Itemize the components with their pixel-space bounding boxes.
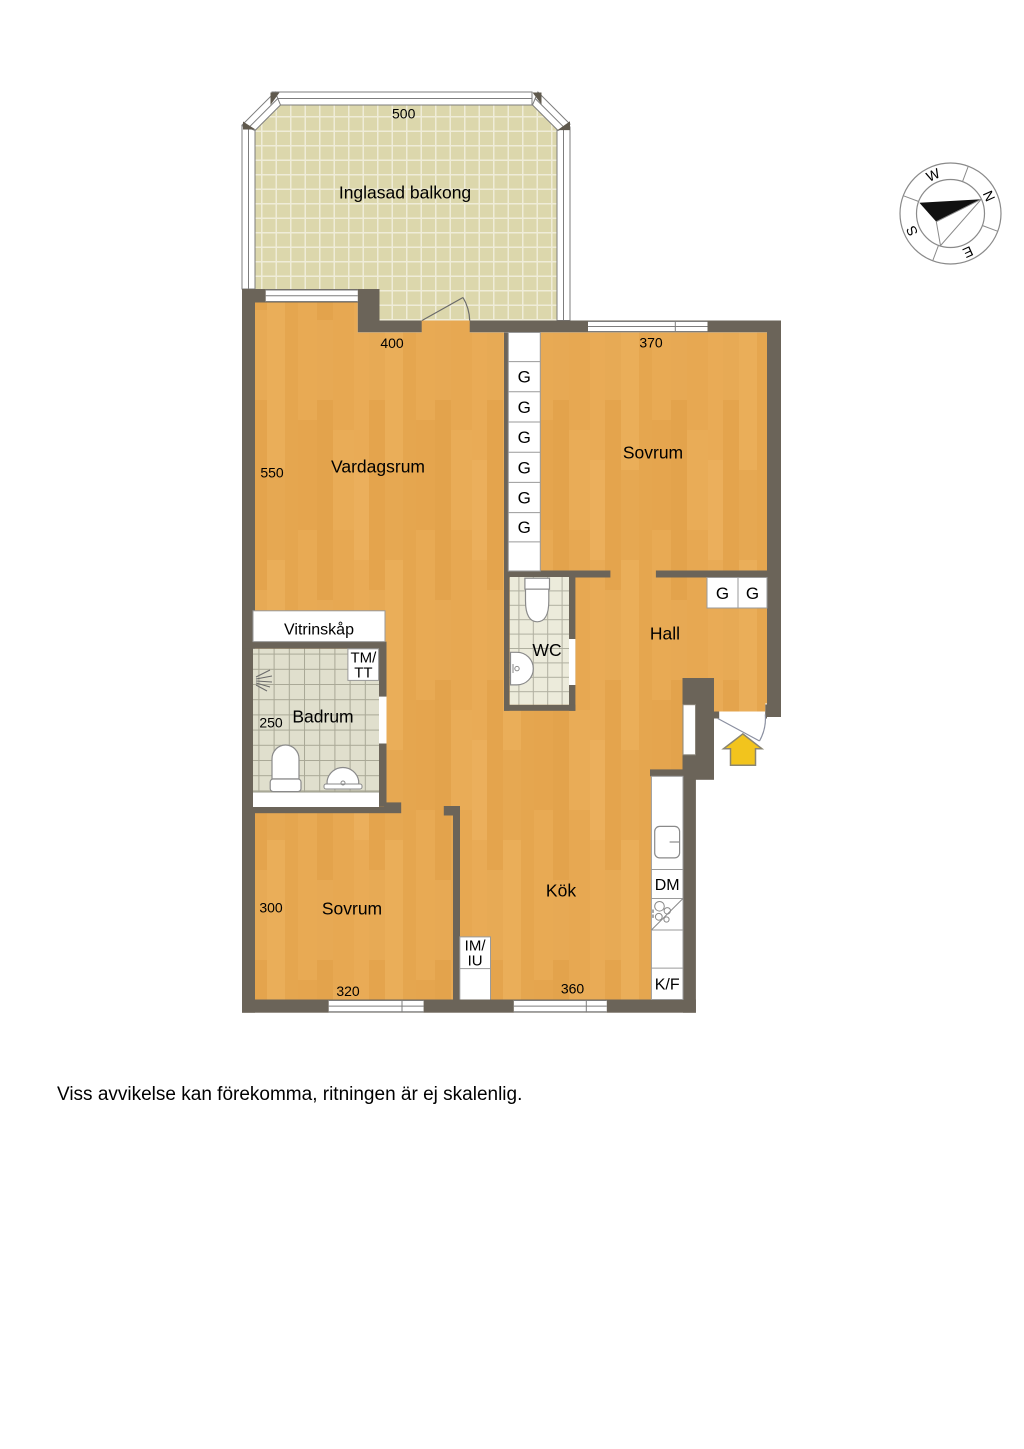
svg-text:G: G (518, 458, 531, 477)
svg-text:G: G (518, 518, 531, 537)
svg-text:Badrum: Badrum (292, 706, 353, 726)
svg-text:250: 250 (259, 715, 283, 731)
svg-text:Kök: Kök (546, 880, 576, 900)
svg-text:370: 370 (639, 335, 663, 351)
svg-text:G: G (518, 428, 531, 447)
svg-text:Viss avvikelse kan förekomma,: Viss avvikelse kan förekomma, ritningen … (57, 1084, 522, 1105)
svg-text:360: 360 (561, 981, 585, 997)
svg-text:550: 550 (260, 465, 284, 481)
svg-text:Sovrum: Sovrum (623, 442, 683, 462)
svg-text:TT: TT (354, 665, 372, 682)
svg-text:Inglasad balkong: Inglasad balkong (339, 182, 471, 202)
svg-text:G: G (746, 584, 759, 603)
svg-text:IU: IU (468, 953, 483, 970)
svg-text:WC: WC (532, 640, 561, 660)
svg-text:500: 500 (392, 106, 416, 122)
svg-text:G: G (518, 368, 531, 387)
svg-text:G: G (518, 398, 531, 417)
svg-text:Vardagsrum: Vardagsrum (331, 456, 425, 476)
svg-text:Vitrinskåp: Vitrinskåp (284, 621, 354, 639)
svg-text:320: 320 (336, 983, 360, 999)
svg-text:G: G (518, 489, 531, 508)
svg-text:Hall: Hall (650, 623, 680, 643)
svg-text:DM: DM (655, 877, 680, 894)
svg-text:300: 300 (259, 900, 283, 916)
svg-text:G: G (716, 584, 729, 603)
svg-text:400: 400 (380, 335, 404, 351)
svg-text:Sovrum: Sovrum (322, 898, 382, 918)
svg-text:K/F: K/F (655, 977, 680, 994)
